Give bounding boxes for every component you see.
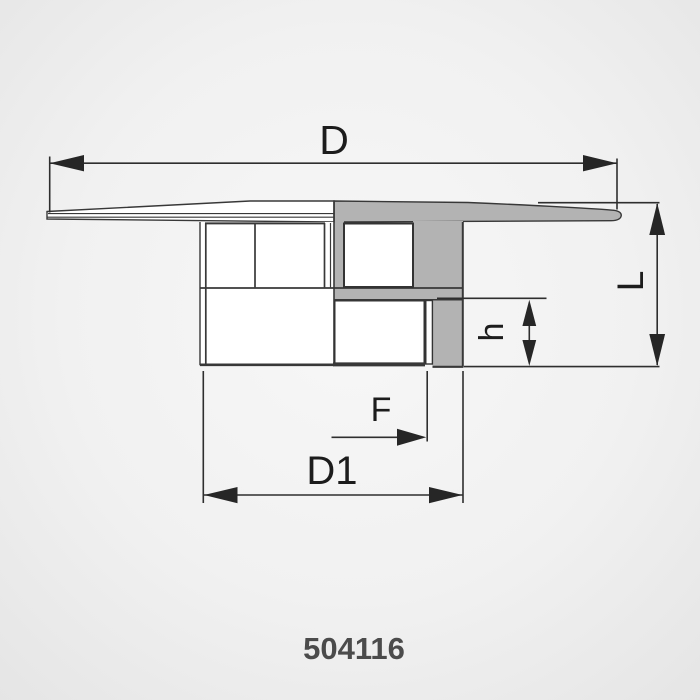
- dim-D-arrow-left: [50, 155, 84, 171]
- dim-D1-arrow-right: [429, 487, 463, 503]
- dim-h-arrow-down: [522, 340, 536, 366]
- lower-cavity: [335, 301, 425, 364]
- drawing-canvas: D L h F D1 504116: [0, 0, 700, 700]
- dim-h-label: h: [473, 323, 511, 342]
- dim-D1-arrow-left: [204, 487, 238, 503]
- dim-F-arrow-right: [397, 429, 426, 446]
- flange-left-outline: [47, 201, 334, 222]
- part-number: 504116: [303, 631, 405, 666]
- dimension-F: F: [332, 371, 428, 446]
- dim-L-arrow-down: [649, 334, 665, 366]
- dimension-D: D: [50, 117, 617, 213]
- flange-section: [334, 201, 621, 222]
- dim-D1-label: D1: [306, 449, 357, 493]
- dim-D-arrow-right: [583, 155, 617, 171]
- upper-cavity: [344, 224, 413, 288]
- body-left-fill: [200, 222, 334, 365]
- lower-column-section: [433, 299, 464, 367]
- thread-gap-channel: [426, 301, 433, 365]
- dim-L-label: L: [610, 271, 651, 292]
- technical-drawing: D L h F D1 504116: [0, 0, 700, 700]
- dim-D-label: D: [319, 117, 349, 163]
- dim-F-label: F: [371, 391, 392, 429]
- flange-left-view: [47, 201, 334, 222]
- dim-L-arrow-up: [649, 203, 665, 235]
- dim-h-arrow-up: [522, 300, 536, 326]
